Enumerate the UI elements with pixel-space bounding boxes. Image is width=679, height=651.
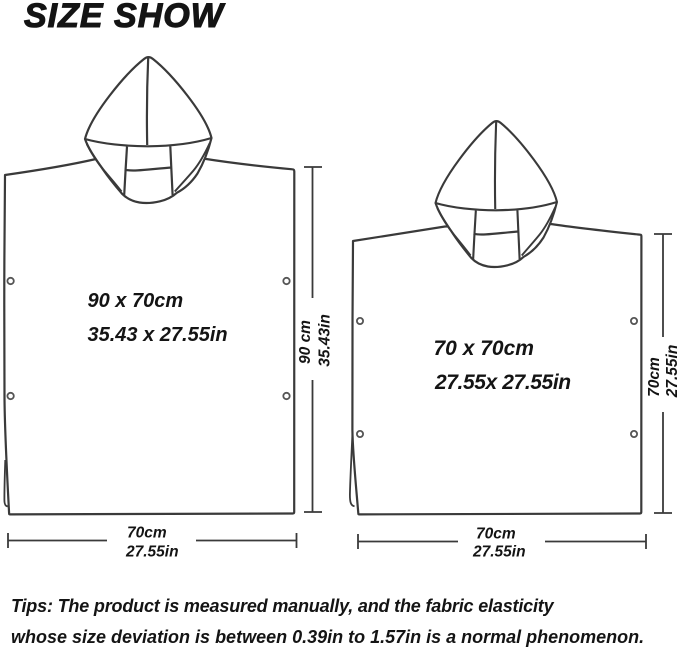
svg-text:SIZE SHOW: SIZE SHOW — [24, 0, 226, 35]
svg-text:70cm: 70cm — [476, 526, 516, 543]
svg-text:70cm: 70cm — [646, 357, 663, 397]
svg-text:whose size deviation is betwee: whose size deviation is between 0.39in t… — [11, 627, 644, 647]
svg-text:35.43 x 27.55in: 35.43 x 27.55in — [88, 324, 228, 346]
svg-text:27.55in: 27.55in — [472, 544, 526, 561]
svg-text:90 cm: 90 cm — [297, 320, 314, 364]
svg-text:70 x 70cm: 70 x 70cm — [434, 337, 534, 360]
svg-text:27.55in: 27.55in — [125, 544, 179, 561]
svg-text:90 x 70cm: 90 x 70cm — [88, 290, 184, 312]
svg-text:70cm: 70cm — [127, 525, 167, 542]
svg-text:27.55x 27.55in: 27.55x 27.55in — [434, 371, 571, 394]
svg-text:27.55in: 27.55in — [664, 345, 679, 399]
svg-text:35.43in: 35.43in — [317, 314, 334, 367]
svg-text:Tips: The product is measured: Tips: The product is measured manually, … — [11, 596, 555, 616]
